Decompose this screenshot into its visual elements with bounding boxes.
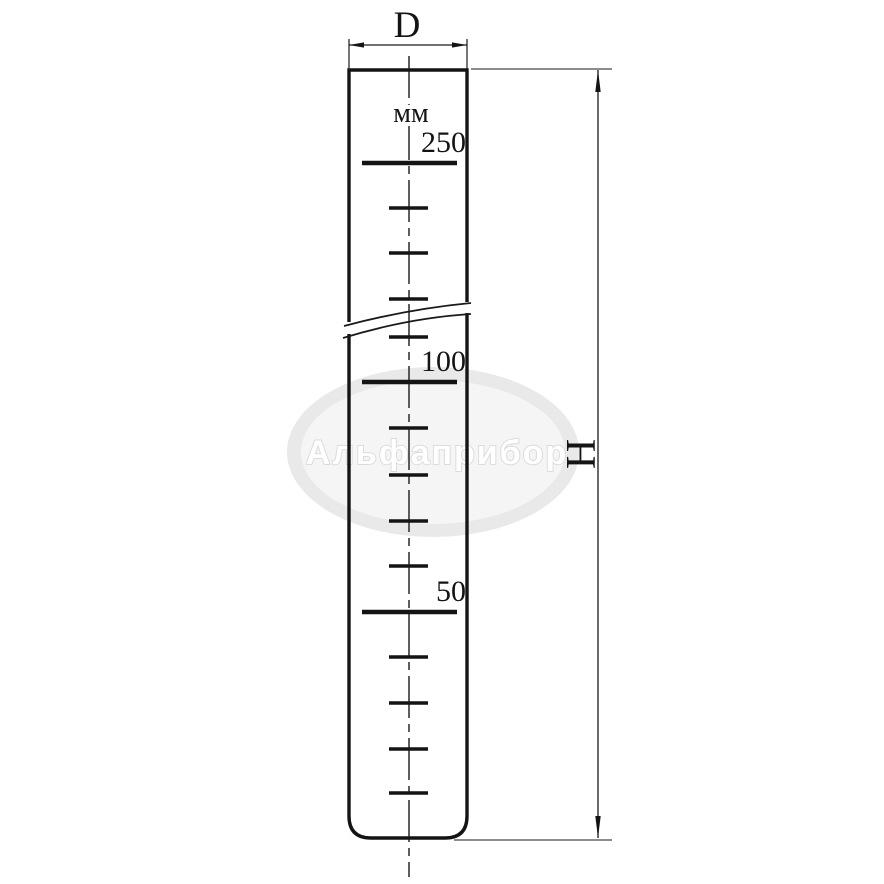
break-line-lower: [343, 314, 471, 338]
watermark-text: Альфаприбор: [306, 434, 568, 472]
measuring-tube-drawing: Альфаприбор 25010050 мм D: [0, 0, 884, 884]
dimension-d: D: [349, 5, 467, 69]
dimension-d-label: D: [394, 5, 421, 46]
watermark: Альфаприбор: [287, 367, 579, 537]
scale-label-100: 100: [421, 345, 466, 378]
drawing-canvas: Альфаприбор 25010050 мм D: [0, 0, 884, 884]
dimension-h-arrow-bottom: [595, 816, 600, 838]
unit-label: мм: [393, 98, 429, 129]
scale-label-50: 50: [436, 575, 466, 608]
dimension-d-arrow-left: [349, 42, 364, 47]
dimension-d-arrow-right: [452, 42, 467, 47]
dimension-h-label: H: [559, 439, 605, 469]
scale-label-250: 250: [421, 126, 466, 159]
dimension-h-arrow-top: [595, 70, 600, 92]
